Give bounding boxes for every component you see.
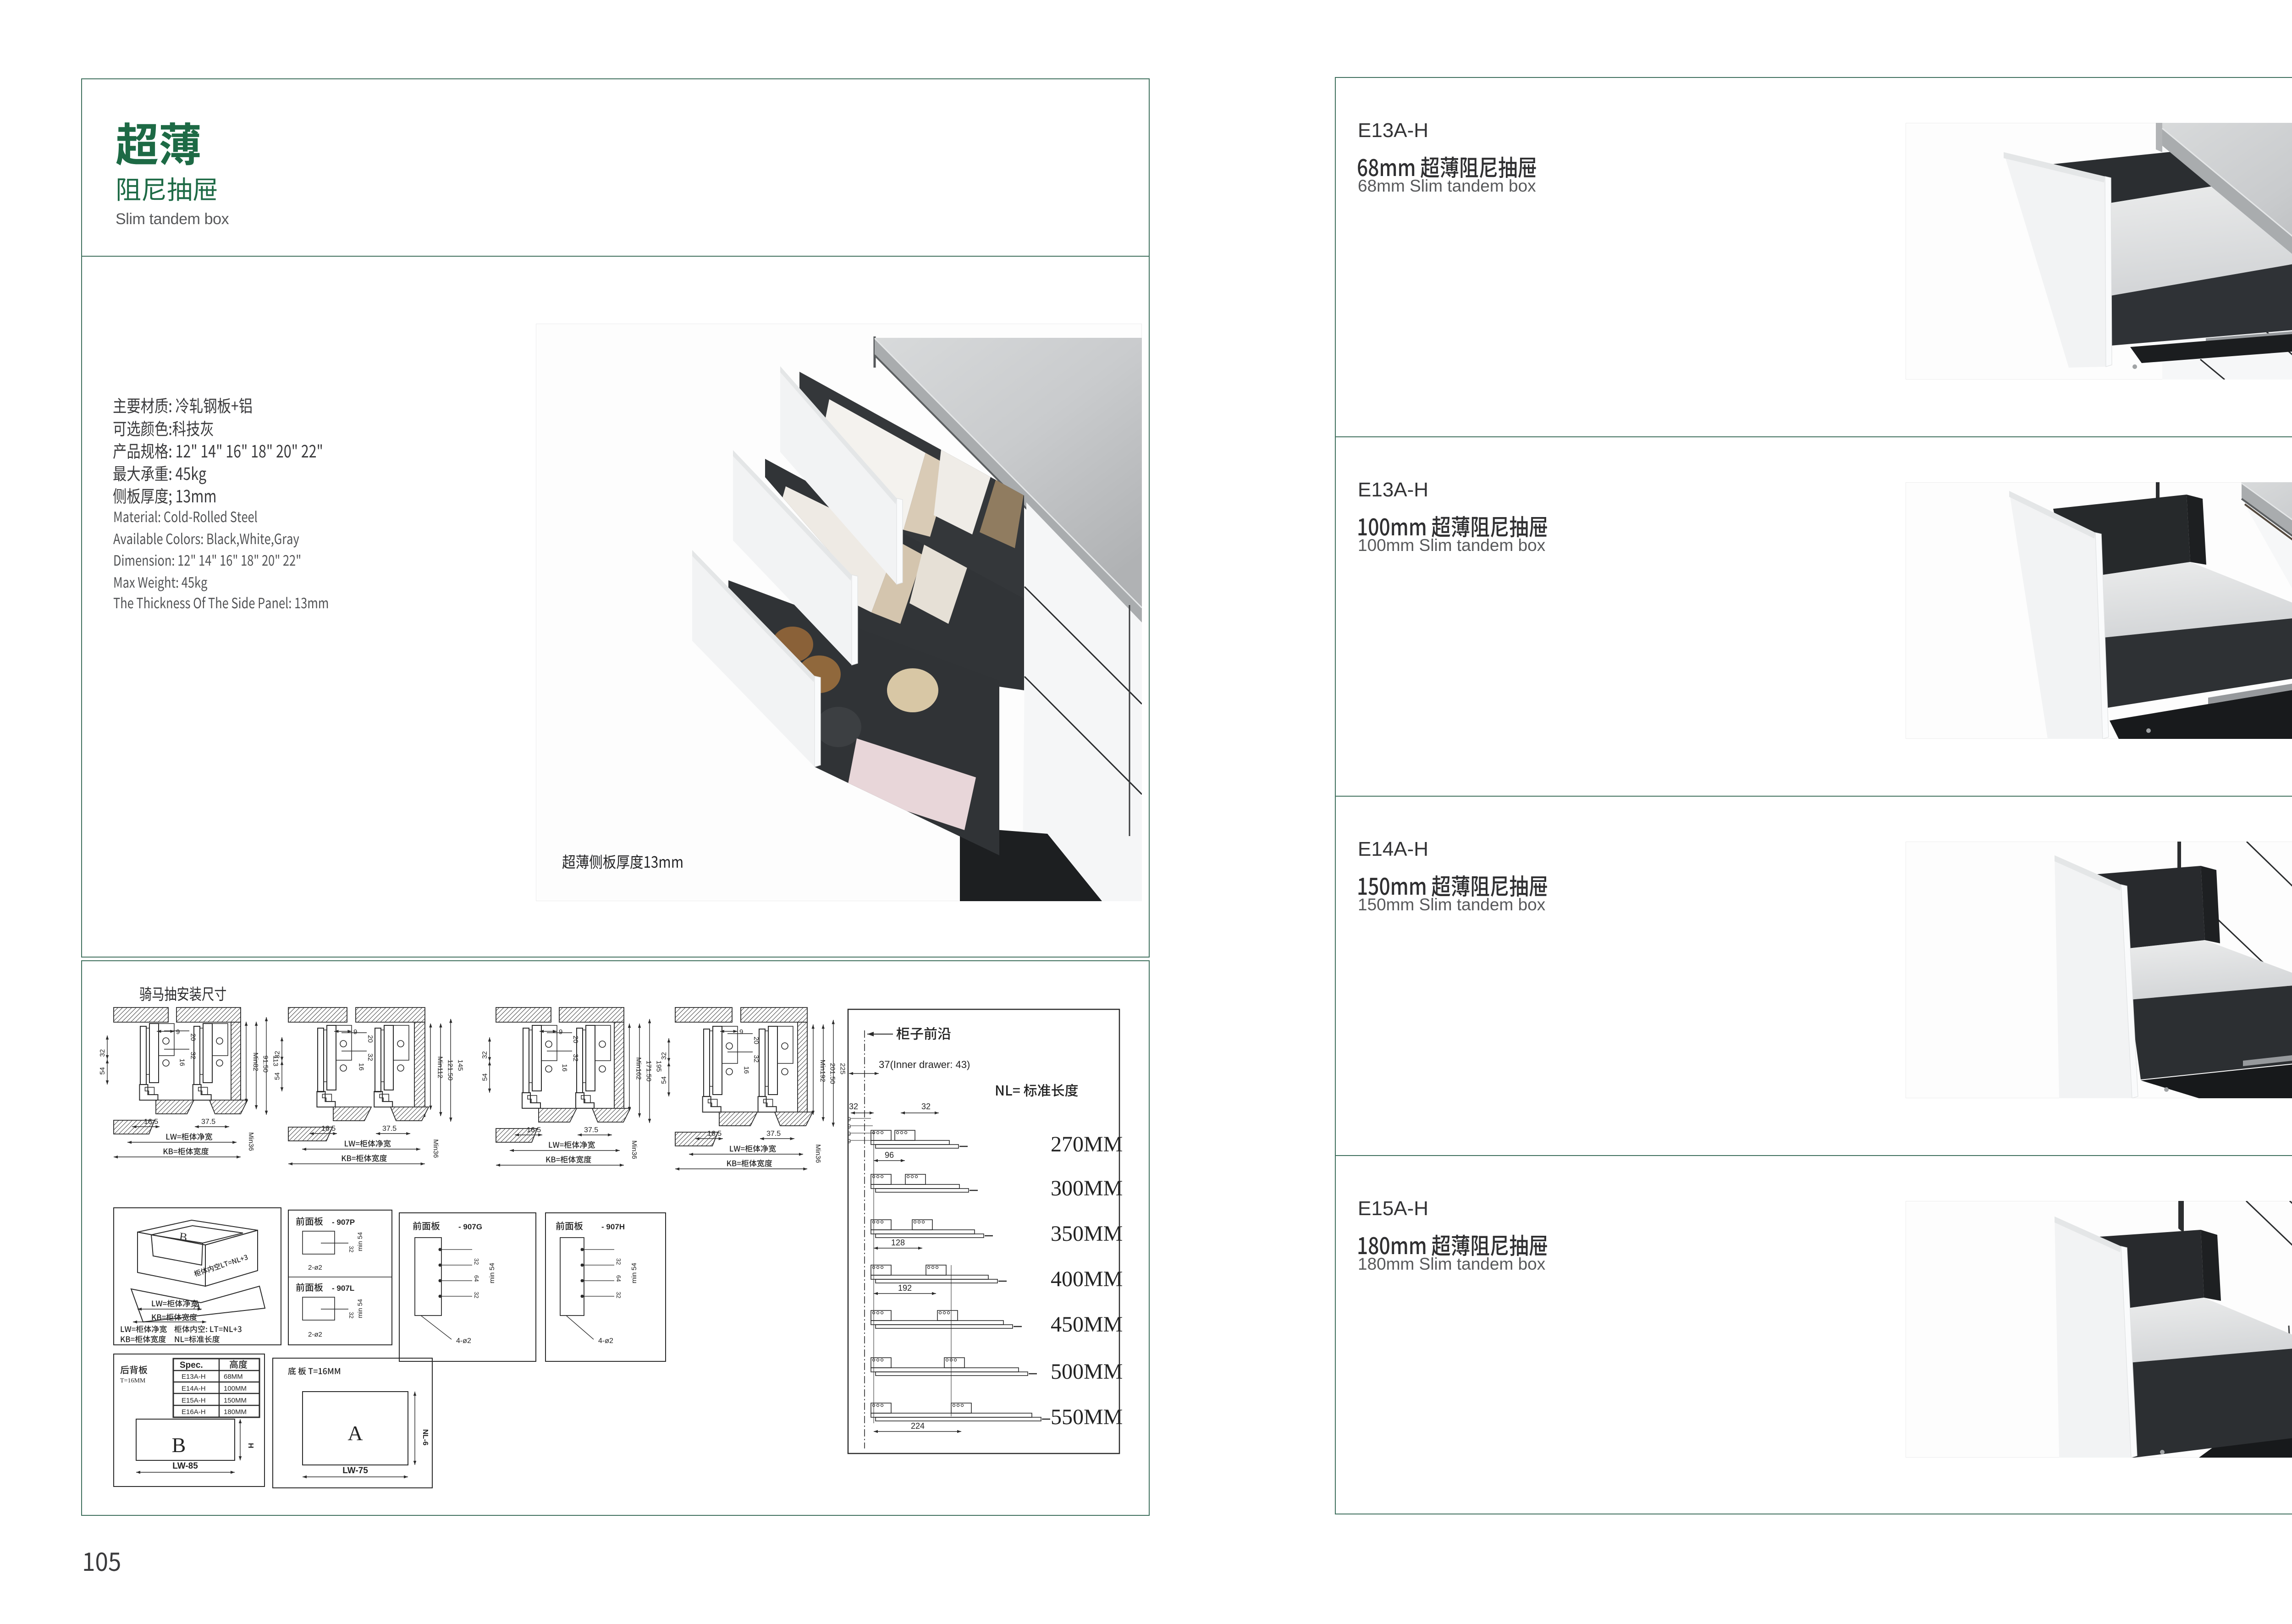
svg-text:2-ø2: 2-ø2 [308, 1264, 322, 1272]
svg-text:E15A-H: E15A-H [182, 1397, 206, 1404]
svg-text:16.5: 16.5 [707, 1130, 722, 1138]
svg-text:32: 32 [273, 1051, 281, 1059]
svg-text:54: 54 [273, 1073, 281, 1080]
svg-text:min 54: min 54 [630, 1263, 638, 1283]
svg-text:32: 32 [615, 1292, 622, 1298]
svg-text:201.50: 201.50 [828, 1063, 836, 1084]
svg-text:Spec.: Spec. [180, 1360, 203, 1370]
svg-text:16: 16 [561, 1064, 568, 1072]
svg-text:- 907P: - 907P [332, 1218, 355, 1227]
svg-text:171.50: 171.50 [645, 1061, 653, 1082]
svg-text:96: 96 [885, 1151, 894, 1160]
svg-text:121.50: 121.50 [446, 1059, 454, 1080]
svg-text:100MM: 100MM [224, 1385, 247, 1393]
svg-text:16.5: 16.5 [321, 1125, 336, 1133]
svg-text:9: 9 [353, 1028, 357, 1036]
svg-text:32: 32 [473, 1292, 480, 1298]
svg-text:128: 128 [891, 1238, 905, 1247]
svg-text:37.5: 37.5 [584, 1126, 598, 1134]
svg-text:37.5: 37.5 [382, 1125, 397, 1133]
svg-text:32: 32 [921, 1102, 931, 1111]
svg-text:37(Inner drawer: 43): 37(Inner drawer: 43) [879, 1059, 970, 1070]
svg-text:E16A-H: E16A-H [182, 1408, 206, 1416]
svg-text:LW-75: LW-75 [342, 1466, 368, 1475]
svg-text:16.5: 16.5 [144, 1118, 158, 1126]
svg-text:E13A-H: E13A-H [182, 1373, 206, 1381]
svg-text:9: 9 [848, 1130, 851, 1137]
svg-text:4-ø2: 4-ø2 [598, 1337, 613, 1345]
svg-text:16.5: 16.5 [527, 1126, 541, 1134]
svg-text:Min162: Min162 [635, 1057, 643, 1080]
svg-text:180MM: 180MM [224, 1408, 247, 1416]
svg-text:min 54: min 54 [356, 1299, 364, 1318]
svg-text:20: 20 [189, 1033, 197, 1041]
svg-text:min 54: min 54 [488, 1263, 496, 1283]
svg-text:500MM: 500MM [1051, 1360, 1123, 1384]
svg-text:9: 9 [739, 1028, 743, 1036]
svg-text:32: 32 [189, 1051, 197, 1059]
svg-text:min 54: min 54 [356, 1232, 364, 1251]
svg-text:32: 32 [348, 1246, 355, 1252]
svg-text:195: 195 [655, 1061, 663, 1072]
svg-text:4-ø2: 4-ø2 [456, 1337, 471, 1345]
svg-text:20: 20 [572, 1035, 579, 1043]
svg-text:64: 64 [473, 1275, 480, 1282]
svg-text:Min36: Min36 [814, 1144, 822, 1163]
svg-text:32: 32 [473, 1258, 480, 1265]
svg-text:20: 20 [366, 1035, 374, 1043]
svg-text:Min112: Min112 [436, 1057, 444, 1079]
svg-text:Min36: Min36 [247, 1132, 255, 1151]
svg-text:32: 32 [615, 1258, 622, 1265]
svg-text:16: 16 [178, 1058, 186, 1066]
svg-text:B: B [172, 1433, 186, 1457]
svg-text:16: 16 [358, 1063, 365, 1071]
svg-text:T=16MM: T=16MM [120, 1377, 146, 1384]
svg-text:224: 224 [911, 1421, 925, 1431]
svg-text:225: 225 [838, 1063, 846, 1074]
svg-text:A: A [347, 1421, 363, 1445]
svg-text:54: 54 [99, 1067, 106, 1075]
svg-text:- 907H: - 907H [601, 1222, 625, 1231]
svg-text:350MM: 350MM [1051, 1222, 1123, 1246]
svg-text:270MM: 270MM [1051, 1132, 1123, 1156]
svg-text:9: 9 [848, 1138, 851, 1145]
svg-text:150MM: 150MM [224, 1397, 247, 1404]
svg-text:LW-85: LW-85 [172, 1461, 198, 1471]
svg-text:32: 32 [849, 1102, 858, 1111]
svg-text:145: 145 [456, 1059, 464, 1071]
svg-text:550MM: 550MM [1051, 1405, 1123, 1429]
svg-text:9: 9 [848, 1116, 851, 1123]
svg-text:300MM: 300MM [1051, 1176, 1123, 1200]
svg-text:H: H [247, 1443, 254, 1448]
svg-text:32: 32 [752, 1055, 760, 1063]
svg-text:91.50: 91.50 [262, 1055, 270, 1073]
svg-text:16: 16 [742, 1066, 750, 1074]
svg-text:Min192: Min192 [819, 1060, 826, 1082]
svg-text:- 907L: - 907L [332, 1284, 354, 1293]
svg-text:20: 20 [752, 1037, 760, 1045]
svg-text:32: 32 [481, 1051, 489, 1059]
svg-text:Min36: Min36 [630, 1140, 638, 1159]
svg-text:54: 54 [481, 1073, 489, 1081]
svg-text:37.5: 37.5 [766, 1130, 781, 1138]
svg-text:32: 32 [572, 1054, 579, 1062]
svg-text:Min36: Min36 [432, 1139, 440, 1158]
svg-text:9: 9 [848, 1123, 851, 1130]
svg-text:B: B [178, 1230, 188, 1244]
svg-text:9: 9 [559, 1028, 562, 1036]
svg-text:450MM: 450MM [1051, 1312, 1123, 1337]
svg-text:37.5: 37.5 [201, 1118, 215, 1126]
svg-text:192: 192 [898, 1283, 912, 1293]
svg-text:68MM: 68MM [224, 1373, 243, 1381]
svg-text:9: 9 [176, 1028, 180, 1036]
svg-text:54: 54 [660, 1076, 668, 1084]
svg-text:E14A-H: E14A-H [182, 1385, 206, 1393]
svg-text:NL-6: NL-6 [421, 1429, 429, 1446]
svg-text:32: 32 [660, 1052, 668, 1060]
svg-text:2-ø2: 2-ø2 [308, 1331, 322, 1338]
svg-text:Min82: Min82 [252, 1052, 259, 1071]
svg-text:64: 64 [615, 1275, 622, 1282]
svg-text:400MM: 400MM [1051, 1267, 1123, 1291]
svg-text:32: 32 [348, 1312, 355, 1318]
svg-text:- 907G: - 907G [458, 1222, 482, 1231]
svg-text:32: 32 [99, 1049, 106, 1057]
svg-text:32: 32 [366, 1053, 374, 1061]
